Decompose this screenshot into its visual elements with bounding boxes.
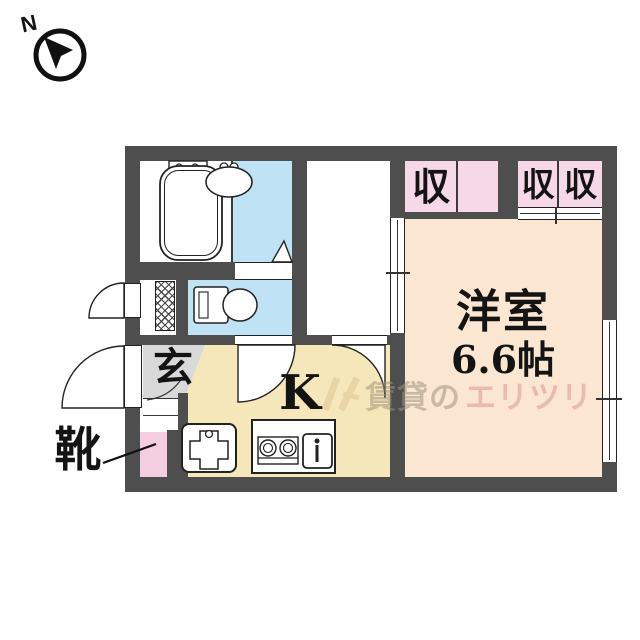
folding-door-triangle: [272, 241, 292, 262]
door-swing-arc: [62, 346, 124, 408]
entrance-label: 玄: [150, 344, 196, 392]
door-swing-arc: [89, 283, 124, 318]
main-room-name: 洋室: [413, 287, 593, 335]
floorplan-canvas: N: [0, 0, 640, 640]
storage-b1-label: 収: [518, 162, 558, 206]
main-room-size: 6.6帖: [413, 339, 593, 381]
storage-a-label: 収: [405, 162, 457, 212]
shoe-pointer-line: [103, 444, 156, 463]
storage-b2-label: 収: [559, 162, 602, 206]
kitchen-label: K: [278, 368, 322, 418]
shoes-label: 靴: [50, 424, 106, 476]
